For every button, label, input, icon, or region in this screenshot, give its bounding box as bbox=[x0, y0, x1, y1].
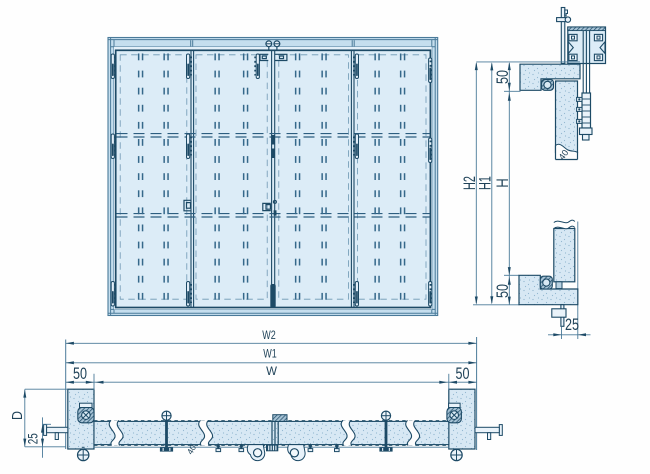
svg-text:25: 25 bbox=[565, 316, 579, 334]
svg-text:50: 50 bbox=[73, 365, 87, 383]
svg-text:H: H bbox=[494, 178, 512, 188]
svg-text:W: W bbox=[266, 366, 277, 378]
svg-text:D: D bbox=[9, 411, 26, 420]
svg-text:25: 25 bbox=[26, 433, 41, 444]
svg-text:W1: W1 bbox=[263, 349, 277, 361]
svg-text:50: 50 bbox=[494, 284, 512, 298]
svg-text:50: 50 bbox=[494, 70, 512, 84]
svg-text:50: 50 bbox=[456, 365, 470, 383]
svg-text:H1: H1 bbox=[476, 176, 494, 190]
svg-text:W2: W2 bbox=[262, 330, 276, 342]
